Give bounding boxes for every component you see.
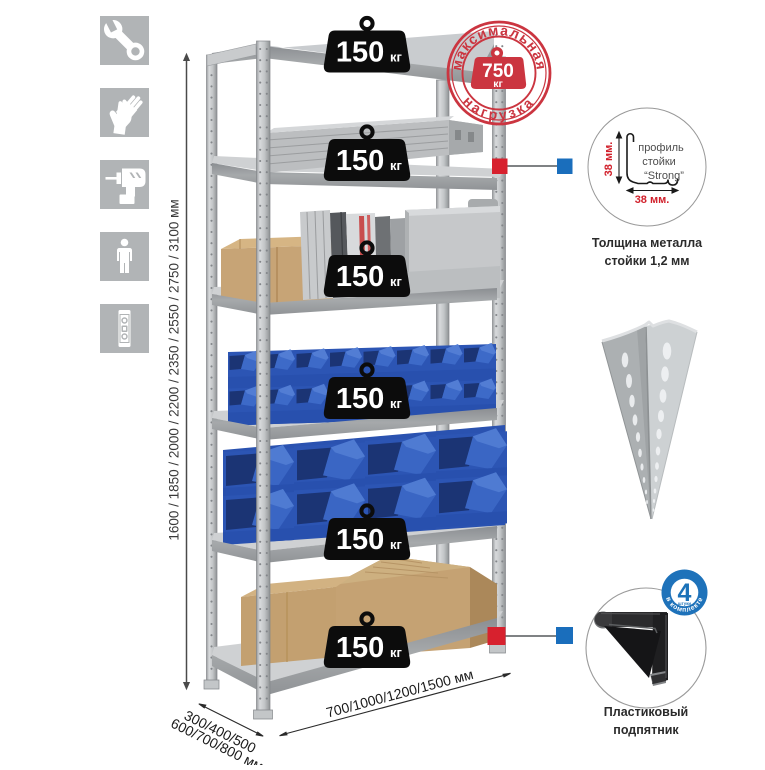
svg-text:Толщина металла: Толщина металла [592, 236, 703, 250]
svg-text:38 мм.: 38 мм. [603, 142, 615, 177]
svg-text:подпятник: подпятник [613, 723, 679, 737]
svg-text:стойки 1,2 мм: стойки 1,2 мм [605, 254, 690, 268]
svg-text:профиль: профиль [638, 142, 684, 154]
svg-text:стойки: стойки [642, 156, 676, 168]
svg-text:38 мм.: 38 мм. [635, 194, 670, 206]
svg-text:“Strong”: “Strong” [644, 170, 684, 182]
svg-text:кг: кг [493, 78, 503, 90]
svg-text:Пластиковый: Пластиковый [604, 705, 688, 719]
svg-text:1600 / 1850 / 2000 / 2200 / 23: 1600 / 1850 / 2000 / 2200 / 2350 / 2550 … [167, 199, 182, 540]
svg-text:штуки: штуки [678, 601, 691, 606]
